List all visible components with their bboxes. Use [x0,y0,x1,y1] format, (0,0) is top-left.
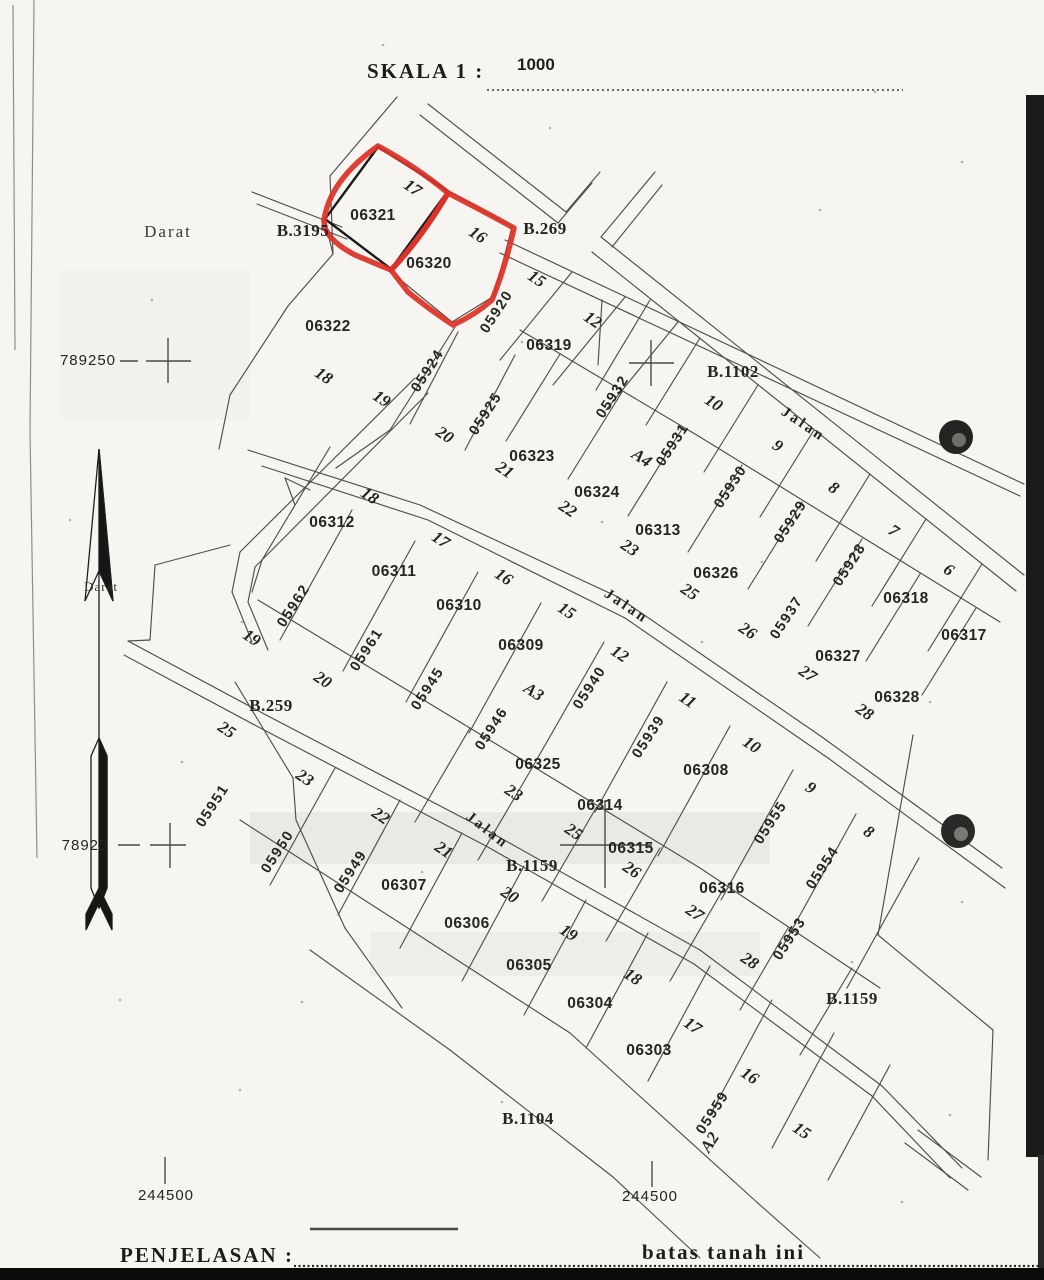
map-label-789250: 789250 [60,352,116,369]
map-label-244500: 244500 [622,1188,678,1205]
map-label-06321: 06321 [350,207,396,224]
speckle [549,127,552,130]
map-label-06304: 06304 [567,995,613,1012]
speckle [421,871,424,874]
map-label-b-1102: B.1102 [707,362,759,381]
cadastral-map: SKALA 1 : 1000 DaratDaratB.3195B.269B.11… [0,0,1044,1280]
scanned-cadastral-map-page: SKALA 1 : 1000 DaratDaratB.3195B.269B.11… [0,0,1044,1280]
speckle [874,91,877,94]
speckle [119,999,122,1002]
binder-hole-top-center [952,433,966,447]
binder-hole-bottom-center [954,827,968,841]
map-label-b-269: B.269 [523,219,567,238]
map-label-06327: 06327 [815,648,861,665]
speckle [761,561,764,564]
penjelasan-label: PENJELASAN : [120,1243,294,1267]
map-label-b-259: B.259 [249,696,293,715]
speckle [961,901,964,904]
map-label-06326: 06326 [693,565,739,582]
speckle [301,1001,304,1004]
speckle [69,519,72,522]
speckle [601,521,604,524]
map-label-244500: 244500 [138,1187,194,1204]
map-label-06303: 06303 [626,1042,672,1059]
speckle [382,44,385,47]
speckle [861,781,864,784]
map-label-06313: 06313 [635,522,681,539]
speckle [949,1114,952,1117]
speckle [819,209,822,212]
bottom-scan-edge [0,1268,1044,1280]
map-label-06306: 06306 [444,915,490,932]
map-label-06328: 06328 [874,689,920,706]
right-scan-edge-lower [1038,1155,1044,1280]
map-label-06324: 06324 [574,484,620,501]
speckle [151,299,154,302]
map-label-b-1159: B.1159 [506,856,558,875]
speckle [241,621,244,624]
map-label-06319: 06319 [526,337,572,354]
map-label-06318: 06318 [883,590,929,607]
map-label-06320: 06320 [406,255,452,272]
speckle [901,1201,904,1204]
speckle [181,761,184,764]
speckle [929,701,932,704]
speckle [521,341,524,344]
speckle [701,641,704,644]
map-label-06312: 06312 [309,514,355,531]
map-label-06308: 06308 [683,762,729,779]
map-label-06314: 06314 [577,797,623,814]
map-label-06325: 06325 [515,756,561,773]
map-label-06323: 06323 [509,448,555,465]
map-label-06305: 06305 [506,957,552,974]
speckle [961,161,964,164]
map-label-06311: 06311 [372,563,417,580]
map-label-darat: Darat [84,579,118,594]
speckle [239,1089,242,1092]
map-label-darat: Darat [144,222,192,241]
map-label-06317: 06317 [941,627,987,644]
scale-value: 1000 [517,55,555,74]
map-label-06309: 06309 [498,637,544,654]
map-label-b-1104: B.1104 [502,1109,554,1128]
batas-tanah-label: batas tanah ini [642,1240,805,1264]
map-label-b-1159: B.1159 [826,989,878,1008]
map-label-06316: 06316 [699,880,745,897]
map-label-78925: 78925 [62,837,109,854]
speckle [851,961,854,964]
scale-label: SKALA 1 : [367,59,484,83]
map-label-06315: 06315 [608,840,654,857]
north-arrow-tail-fill [99,738,107,908]
map-label-06322: 06322 [305,318,351,335]
map-label-06307: 06307 [381,877,427,894]
map-label-06310: 06310 [436,597,482,614]
right-scan-edge [1026,95,1044,1157]
speckle [501,1101,504,1104]
map-label-b-3195: B.3195 [277,221,330,240]
